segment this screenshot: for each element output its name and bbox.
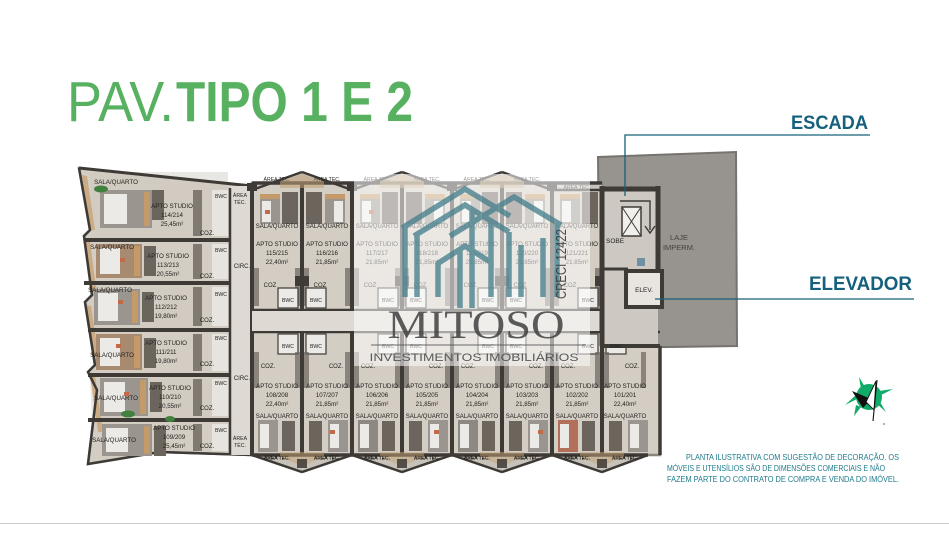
svg-text:114/214: 114/214	[161, 212, 183, 219]
svg-text:21,85m²: 21,85m²	[466, 401, 489, 408]
svg-text:COZ.: COZ.	[329, 364, 344, 370]
svg-text:APTO STUDIO: APTO STUDIO	[147, 253, 189, 260]
svg-text:IMPERM.: IMPERM.	[663, 243, 695, 252]
svg-text:ÁREA: ÁREA	[233, 435, 248, 442]
svg-text:BWC: BWC	[610, 344, 622, 350]
svg-text:APTO STUDIO: APTO STUDIO	[256, 241, 298, 248]
svg-text:APTO STUDIO: APTO STUDIO	[456, 383, 498, 390]
svg-text:SALA/QUARTO: SALA/QUARTO	[256, 414, 299, 420]
svg-text:105/205: 105/205	[416, 392, 439, 399]
svg-text:TÉC.: TÉC.	[234, 442, 246, 449]
svg-text:ÁREA TEC.: ÁREA TEC.	[364, 455, 390, 462]
svg-text:SALA/QUARTO: SALA/QUARTO	[406, 414, 449, 420]
svg-text:SOBE: SOBE	[606, 238, 625, 245]
svg-text:21,85m²: 21,85m²	[516, 401, 539, 408]
svg-text:20,55m²: 20,55m²	[159, 403, 182, 410]
svg-text:ÁREA TEC.: ÁREA TEC.	[612, 455, 638, 462]
svg-text:21,85m²: 21,85m²	[566, 401, 589, 408]
svg-text:ELEVADOR: ELEVADOR	[809, 274, 912, 295]
svg-text:106/206: 106/206	[366, 392, 389, 399]
svg-text:PAV.: PAV.	[67, 70, 174, 134]
svg-text:APTO STUDIO: APTO STUDIO	[356, 383, 398, 390]
svg-text:SALA/QUARTO: SALA/QUARTO	[306, 414, 349, 420]
svg-text:SALA/QUARTO: SALA/QUARTO	[94, 179, 138, 186]
svg-text:APTO STUDIO: APTO STUDIO	[151, 203, 193, 210]
svg-text:109/209: 109/209	[163, 434, 186, 441]
svg-text:107/207: 107/207	[316, 392, 339, 399]
svg-text:21,85m²: 21,85m²	[366, 401, 389, 408]
svg-text:BWC: BWC	[310, 298, 322, 304]
svg-text:25,45m²: 25,45m²	[161, 221, 184, 228]
svg-text:25,45m²: 25,45m²	[163, 443, 186, 450]
svg-text:TÉC.: TÉC.	[234, 199, 246, 206]
svg-text:APTO STUDIO: APTO STUDIO	[153, 425, 195, 432]
svg-text:BWC: BWC	[282, 344, 294, 350]
svg-text:115/215: 115/215	[266, 250, 288, 257]
svg-text:112/212: 112/212	[155, 304, 177, 311]
svg-text:COZ.: COZ.	[200, 231, 215, 237]
svg-text:ÁREA TEC.: ÁREA TEC.	[264, 455, 290, 462]
svg-text:SALA/QUARTO: SALA/QUARTO	[92, 437, 136, 444]
svg-text:SALA/QUARTO: SALA/QUARTO	[356, 414, 399, 420]
svg-text:COZ.: COZ.	[625, 364, 640, 370]
svg-text:113/213: 113/213	[157, 262, 179, 269]
svg-text:MITOSO: MITOSO	[388, 302, 565, 347]
svg-text:SALA/QUARTO: SALA/QUARTO	[88, 287, 132, 294]
svg-text:SALA/QUARTO: SALA/QUARTO	[94, 395, 138, 402]
svg-text:SALA/QUARTO: SALA/QUARTO	[456, 414, 499, 420]
svg-text:PLANTA ILUSTRATIVA COM SUGESTÃ: PLANTA ILUSTRATIVA COM SUGESTÃO DE DECOR…	[686, 452, 899, 462]
svg-text:ÁREA TEC.: ÁREA TEC.	[514, 455, 540, 462]
svg-text:COZ.: COZ.	[200, 318, 215, 324]
svg-text:BWC: BWC	[215, 248, 227, 254]
svg-text:CRECI 12422: CRECI 12422	[553, 229, 570, 299]
svg-text:SALA/QUARTO: SALA/QUARTO	[506, 414, 549, 420]
svg-text:116/216: 116/216	[316, 250, 338, 257]
svg-text:APTO STUDIO: APTO STUDIO	[406, 383, 448, 390]
svg-text:22,40m²: 22,40m²	[614, 401, 637, 408]
svg-text:LAJE: LAJE	[670, 233, 688, 242]
svg-text:CIRC.: CIRC.	[234, 376, 251, 382]
svg-text:103/203: 103/203	[516, 392, 539, 399]
svg-text:INVESTIMENTOS IMOBILIÁRIOS: INVESTIMENTOS IMOBILIÁRIOS	[370, 351, 579, 364]
svg-text:BWC: BWC	[310, 344, 322, 350]
svg-text:19,80m²: 19,80m²	[155, 358, 178, 365]
svg-text:ÁREA TEC.: ÁREA TEC.	[564, 455, 590, 462]
svg-text:BWC: BWC	[215, 428, 227, 434]
svg-text:104/204: 104/204	[466, 392, 489, 399]
svg-text:APTO STUDIO: APTO STUDIO	[145, 340, 187, 347]
svg-text:21,85m²: 21,85m²	[416, 401, 439, 408]
svg-text:20,55m²: 20,55m²	[157, 271, 180, 278]
svg-text:ÁREA TEC.: ÁREA TEC.	[464, 455, 490, 462]
svg-text:COZ.: COZ.	[261, 364, 276, 370]
svg-text:19,80m²: 19,80m²	[155, 313, 178, 320]
svg-text:108/208: 108/208	[266, 392, 289, 399]
svg-text:COZ: COZ	[314, 283, 327, 289]
svg-text:ELEV.: ELEV.	[635, 287, 653, 294]
svg-text:102/202: 102/202	[566, 392, 589, 399]
svg-text:111/211: 111/211	[156, 349, 178, 356]
svg-text:APTO STUDIO: APTO STUDIO	[306, 241, 348, 248]
svg-text:TIPO 1 E 2: TIPO 1 E 2	[176, 70, 413, 134]
svg-text:SALA/QUARTO: SALA/QUARTO	[90, 244, 134, 251]
svg-text:22,40m²: 22,40m²	[266, 401, 289, 408]
svg-text:BWC: BWC	[215, 336, 227, 342]
svg-text:APTO STUDIO: APTO STUDIO	[149, 385, 191, 392]
svg-text:CIRC.: CIRC.	[234, 264, 251, 270]
svg-text:BWC: BWC	[215, 194, 227, 200]
svg-text:22,40m²: 22,40m²	[266, 259, 289, 266]
svg-text:COZ: COZ	[264, 283, 277, 289]
svg-text:COZ.: COZ.	[200, 362, 215, 368]
svg-text:SALA/QUARTO: SALA/QUARTO	[256, 224, 299, 230]
svg-text:FAZEM PARTE DO CONTRATO DE COM: FAZEM PARTE DO CONTRATO DE COMPRA E VEND…	[667, 474, 899, 484]
svg-text:APTO STUDIO: APTO STUDIO	[145, 295, 187, 302]
svg-text:BWC: BWC	[282, 298, 294, 304]
svg-text:APTO STUDIO: APTO STUDIO	[506, 383, 548, 390]
svg-text:110/210: 110/210	[159, 394, 181, 401]
svg-text:APTO STUDIO: APTO STUDIO	[556, 383, 598, 390]
svg-text:101/201: 101/201	[614, 392, 637, 399]
svg-text:COZ.: COZ.	[200, 406, 215, 412]
svg-text:APTO STUDIO: APTO STUDIO	[604, 383, 646, 390]
svg-text:ÁREA TEC.: ÁREA TEC.	[314, 455, 340, 462]
svg-text:APTO STUDIO: APTO STUDIO	[256, 383, 298, 390]
svg-text:COZ.: COZ.	[200, 444, 215, 450]
svg-text:SALA/QUARTO: SALA/QUARTO	[90, 352, 134, 359]
svg-text:ESCADA: ESCADA	[791, 113, 868, 134]
svg-text:BWC: BWC	[215, 381, 227, 387]
svg-text:MÓVEIS E UTENSÍLIOS SÃO DE DIM: MÓVEIS E UTENSÍLIOS SÃO DE DIMENSÕES COM…	[667, 463, 885, 473]
svg-text:APTO STUDIO: APTO STUDIO	[306, 383, 348, 390]
svg-text:ÁREA TEC.: ÁREA TEC.	[414, 455, 440, 462]
svg-text:COZ.: COZ.	[200, 274, 215, 280]
svg-text:BWC: BWC	[215, 292, 227, 298]
svg-text:SALA/QUARTO: SALA/QUARTO	[604, 414, 647, 420]
svg-text:SALA/QUARTO: SALA/QUARTO	[306, 224, 349, 230]
svg-text:SALA/QUARTO: SALA/QUARTO	[556, 414, 599, 420]
svg-text:21,85m²: 21,85m²	[316, 401, 339, 408]
svg-text:21,85m²: 21,85m²	[316, 259, 339, 266]
svg-text:ÁREA: ÁREA	[233, 192, 248, 199]
